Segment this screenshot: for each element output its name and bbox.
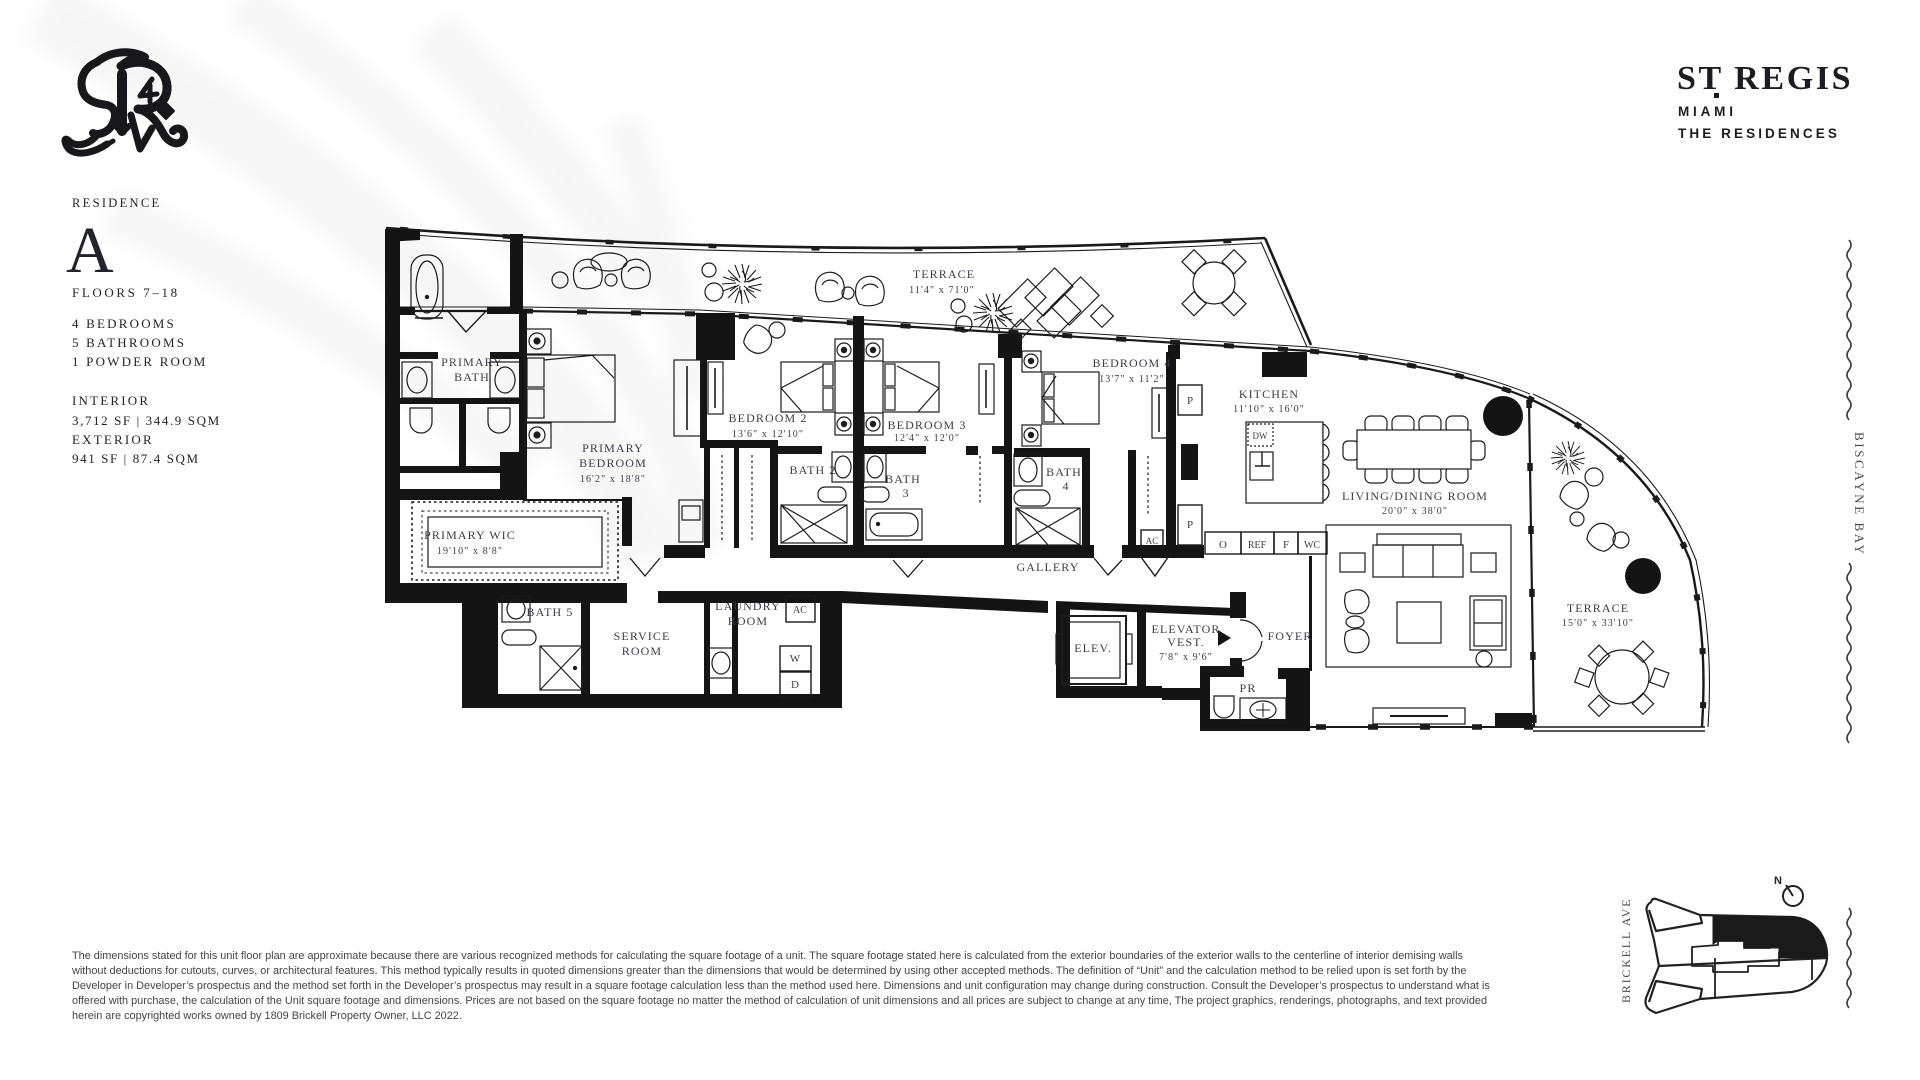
svg-text:BATH: BATH [885, 472, 921, 486]
svg-text:MIAMI: MIAMI [1678, 104, 1737, 119]
svg-text:The dimensions stated for this: The dimensions stated for this unit floo… [72, 950, 1464, 962]
svg-text:herein are copyrighted works o: herein are copyrighted works owned by 18… [72, 1010, 462, 1022]
svg-text:LIVING/DINING ROOM: LIVING/DINING ROOM [1342, 489, 1488, 503]
svg-text:BEDROOM 3: BEDROOM 3 [888, 418, 967, 432]
svg-text:P: P [1187, 519, 1193, 531]
svg-text:5 BATHROOMS: 5 BATHROOMS [72, 335, 186, 350]
svg-text:PRIMARY: PRIMARY [582, 441, 644, 455]
svg-text:BATH 2: BATH 2 [790, 463, 837, 477]
svg-text:N: N [1774, 875, 1782, 887]
svg-text:LAUNDRY: LAUNDRY [715, 599, 781, 613]
svg-text:PRIMARY WIC: PRIMARY WIC [424, 528, 516, 542]
svg-text:O: O [1219, 539, 1227, 551]
svg-text:P: P [1187, 395, 1193, 407]
svg-text:11'4" x 71'0": 11'4" x 71'0" [909, 285, 975, 296]
svg-text:19'10" x 8'8": 19'10" x 8'8" [437, 546, 503, 557]
svg-text:BEDROOM 2: BEDROOM 2 [729, 411, 808, 425]
svg-text:AC: AC [793, 605, 807, 616]
svg-text:ROOM: ROOM [728, 614, 768, 628]
svg-text:ROOM: ROOM [622, 644, 662, 658]
svg-text:15'0" x 33'10": 15'0" x 33'10" [1562, 618, 1634, 629]
svg-text:BATH: BATH [454, 370, 490, 384]
svg-text:without deductions for cutouts: without deductions for cutouts, curves, … [71, 965, 1466, 977]
svg-text:4: 4 [1062, 479, 1069, 493]
svg-text:VEST.: VEST. [1167, 635, 1205, 649]
svg-text:TERRACE: TERRACE [913, 267, 975, 281]
svg-text:FOYER: FOYER [1268, 629, 1313, 643]
svg-text:BEDROOM 4: BEDROOM 4 [1093, 356, 1172, 370]
svg-text:PR: PR [1240, 681, 1257, 695]
svg-text:A: A [66, 214, 114, 287]
svg-text:DW: DW [1253, 431, 1268, 441]
svg-text:AC: AC [1146, 536, 1159, 546]
svg-text:BISCAYNE BAY: BISCAYNE BAY [1852, 432, 1867, 557]
svg-text:BATH 5: BATH 5 [527, 605, 574, 619]
svg-text:REF: REF [1248, 540, 1267, 551]
svg-text:Developer in Developer’s prosp: Developer in Developer’s prospectus and … [72, 980, 1490, 992]
svg-text:FLOORS 7–18: FLOORS 7–18 [72, 285, 180, 300]
svg-text:ELEV.: ELEV. [1074, 641, 1112, 655]
svg-text:11'10" x 16'0": 11'10" x 16'0" [1233, 404, 1305, 415]
svg-text:INTERIOR: INTERIOR [72, 393, 150, 408]
svg-text:BRICKELL AVE: BRICKELL AVE [1619, 898, 1633, 1003]
svg-text:RESIDENCE: RESIDENCE [72, 196, 161, 210]
svg-text:BEDROOM: BEDROOM [579, 456, 647, 470]
svg-text:ELEVATOR: ELEVATOR [1151, 622, 1220, 636]
svg-text:12'4" x 12'0": 12'4" x 12'0" [894, 433, 960, 444]
svg-text:EXTERIOR: EXTERIOR [72, 432, 154, 447]
svg-text:SERVICE: SERVICE [614, 629, 671, 643]
svg-text:D: D [791, 679, 799, 691]
svg-text:3: 3 [902, 486, 909, 500]
svg-text:WC: WC [1304, 540, 1320, 551]
svg-text:7'8" x 9'6": 7'8" x 9'6" [1159, 652, 1213, 663]
svg-text:941 SF | 87.4 SQM: 941 SF | 87.4 SQM [72, 451, 200, 466]
svg-text:KITCHEN: KITCHEN [1239, 387, 1299, 401]
svg-text:4 BEDROOMS: 4 BEDROOMS [72, 316, 176, 331]
svg-text:THE RESIDENCES: THE RESIDENCES [1678, 126, 1840, 141]
svg-text:3,712 SF | 344.9 SQM: 3,712 SF | 344.9 SQM [72, 413, 221, 428]
svg-text:TERRACE: TERRACE [1567, 601, 1629, 615]
svg-text:W: W [790, 653, 801, 665]
svg-text:16'2" x 18'8": 16'2" x 18'8" [580, 474, 646, 485]
svg-text:offered with purchase, the cal: offered with purchase, the calculation o… [72, 995, 1487, 1007]
svg-text:1 POWDER ROOM: 1 POWDER ROOM [72, 354, 208, 369]
svg-text:20'0" x 38'0": 20'0" x 38'0" [1382, 506, 1448, 517]
svg-text:BATH: BATH [1046, 465, 1082, 479]
svg-text:F: F [1283, 539, 1289, 551]
svg-text:13'6" x 12'10": 13'6" x 12'10" [732, 429, 804, 440]
svg-text:13'7" x 11'2": 13'7" x 11'2" [1099, 374, 1165, 385]
svg-text:ST REGIS: ST REGIS [1677, 60, 1853, 97]
svg-text:GALLERY: GALLERY [1016, 560, 1079, 574]
